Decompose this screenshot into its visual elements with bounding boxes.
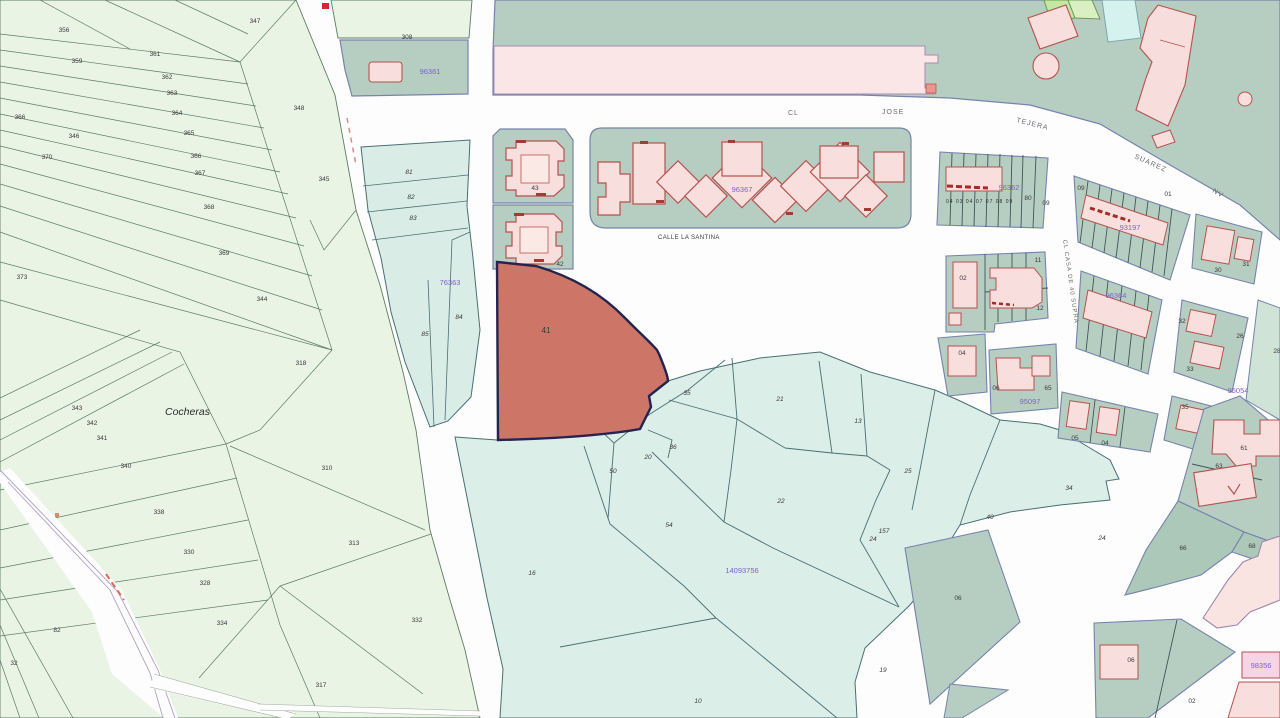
- svg-text:318: 318: [296, 360, 307, 367]
- svg-text:31: 31: [1242, 261, 1250, 268]
- svg-text:28: 28: [1273, 348, 1280, 355]
- svg-text:09: 09: [1077, 185, 1085, 192]
- svg-text:83: 83: [409, 215, 417, 222]
- svg-text:11: 11: [1035, 257, 1042, 264]
- svg-text:332: 332: [412, 617, 423, 624]
- svg-text:63: 63: [1215, 463, 1223, 470]
- svg-text:24: 24: [1097, 535, 1106, 542]
- svg-text:367: 367: [195, 170, 206, 177]
- svg-text:JOSE: JOSE: [882, 109, 904, 116]
- svg-text:346: 346: [69, 133, 80, 140]
- svg-text:54: 54: [665, 522, 673, 529]
- svg-text:361: 361: [150, 51, 161, 58]
- svg-text:10: 10: [694, 698, 702, 705]
- svg-text:21: 21: [775, 396, 784, 403]
- svg-text:98356: 98356: [1251, 661, 1272, 670]
- svg-text:04: 04: [1101, 440, 1109, 447]
- svg-text:348: 348: [294, 105, 305, 112]
- svg-text:09: 09: [1042, 200, 1050, 207]
- svg-text:317: 317: [316, 682, 327, 689]
- svg-text:68: 68: [1248, 543, 1256, 550]
- svg-text:342: 342: [87, 420, 98, 427]
- svg-text:368: 368: [204, 204, 215, 211]
- svg-text:32: 32: [10, 660, 18, 667]
- svg-text:82: 82: [53, 627, 61, 634]
- svg-text:24: 24: [868, 536, 877, 543]
- svg-text:65: 65: [1044, 385, 1052, 392]
- svg-text:96362: 96362: [999, 183, 1020, 192]
- svg-text:356: 356: [59, 27, 70, 34]
- svg-text:13: 13: [854, 418, 862, 425]
- svg-text:310: 310: [322, 465, 333, 472]
- svg-text:81: 81: [405, 169, 413, 176]
- svg-text:04: 04: [958, 350, 966, 357]
- svg-text:06: 06: [954, 595, 962, 602]
- svg-text:85: 85: [421, 331, 429, 338]
- svg-text:26: 26: [1236, 333, 1244, 340]
- svg-text:340: 340: [121, 463, 132, 470]
- svg-text:34: 34: [1065, 485, 1073, 492]
- svg-text:Cocheras: Cocheras: [165, 406, 211, 418]
- svg-text:19: 19: [879, 667, 887, 674]
- svg-text:CALLE LA SANTINA: CALLE LA SANTINA: [658, 235, 720, 241]
- svg-text:80: 80: [1024, 195, 1032, 202]
- svg-text:373: 373: [17, 274, 28, 281]
- svg-text:370: 370: [42, 154, 53, 161]
- svg-text:35: 35: [1181, 404, 1189, 411]
- svg-text:42: 42: [556, 261, 564, 268]
- svg-text:334: 334: [217, 620, 228, 627]
- svg-text:338: 338: [154, 509, 165, 516]
- svg-text:365: 365: [184, 130, 195, 137]
- svg-text:369: 369: [219, 250, 230, 257]
- svg-text:50: 50: [609, 468, 617, 475]
- svg-text:366: 366: [15, 114, 26, 121]
- svg-text:362: 362: [162, 74, 173, 81]
- svg-text:66: 66: [1179, 545, 1187, 552]
- svg-text:43: 43: [531, 185, 539, 192]
- svg-text:157: 157: [879, 528, 890, 535]
- svg-text:363: 363: [167, 90, 178, 97]
- svg-text:16: 16: [528, 570, 536, 577]
- svg-text:313: 313: [349, 540, 360, 547]
- svg-text:84: 84: [455, 314, 463, 321]
- svg-text:40: 40: [986, 514, 994, 521]
- svg-text:06: 06: [1127, 657, 1135, 664]
- svg-text:328: 328: [200, 580, 211, 587]
- svg-text:93197: 93197: [1120, 223, 1141, 232]
- svg-text:33: 33: [1186, 366, 1194, 373]
- svg-text:30: 30: [1214, 267, 1222, 274]
- svg-text:330: 330: [184, 549, 195, 556]
- svg-text:344: 344: [257, 296, 268, 303]
- svg-text:308: 308: [402, 34, 413, 41]
- svg-text:96361: 96361: [420, 67, 441, 76]
- svg-text:41: 41: [542, 326, 551, 335]
- svg-text:36: 36: [669, 444, 677, 451]
- svg-text:05: 05: [1071, 435, 1079, 442]
- svg-text:20: 20: [643, 454, 652, 461]
- svg-text:96367: 96367: [732, 185, 753, 194]
- svg-text:82: 82: [407, 194, 415, 201]
- svg-text:76363: 76363: [440, 278, 461, 287]
- svg-text:341: 341: [97, 435, 108, 442]
- svg-text:95097: 95097: [1020, 397, 1041, 406]
- svg-text:04 03 04 07 07 08 09: 04 03 04 07 07 08 09: [946, 199, 1013, 205]
- svg-text:01: 01: [1164, 191, 1172, 198]
- svg-text:CL: CL: [788, 110, 799, 117]
- svg-text:95054: 95054: [1228, 386, 1249, 395]
- svg-text:06: 06: [992, 385, 1000, 392]
- svg-text:364: 364: [172, 110, 183, 117]
- svg-text:02: 02: [959, 275, 967, 282]
- svg-text:343: 343: [72, 405, 83, 412]
- svg-text:61: 61: [1240, 445, 1248, 452]
- svg-text:345: 345: [319, 176, 330, 183]
- svg-text:14093756: 14093756: [725, 566, 758, 575]
- svg-text:22: 22: [776, 498, 785, 505]
- svg-text:02: 02: [1188, 698, 1196, 705]
- svg-text:96364: 96364: [1106, 291, 1127, 300]
- svg-text:347: 347: [250, 18, 261, 25]
- svg-text:359: 359: [72, 58, 83, 65]
- svg-text:25: 25: [903, 468, 912, 475]
- svg-text:366: 366: [191, 153, 202, 160]
- svg-text:12: 12: [1036, 305, 1044, 312]
- svg-text:35: 35: [683, 390, 691, 397]
- svg-text:32: 32: [1178, 318, 1186, 325]
